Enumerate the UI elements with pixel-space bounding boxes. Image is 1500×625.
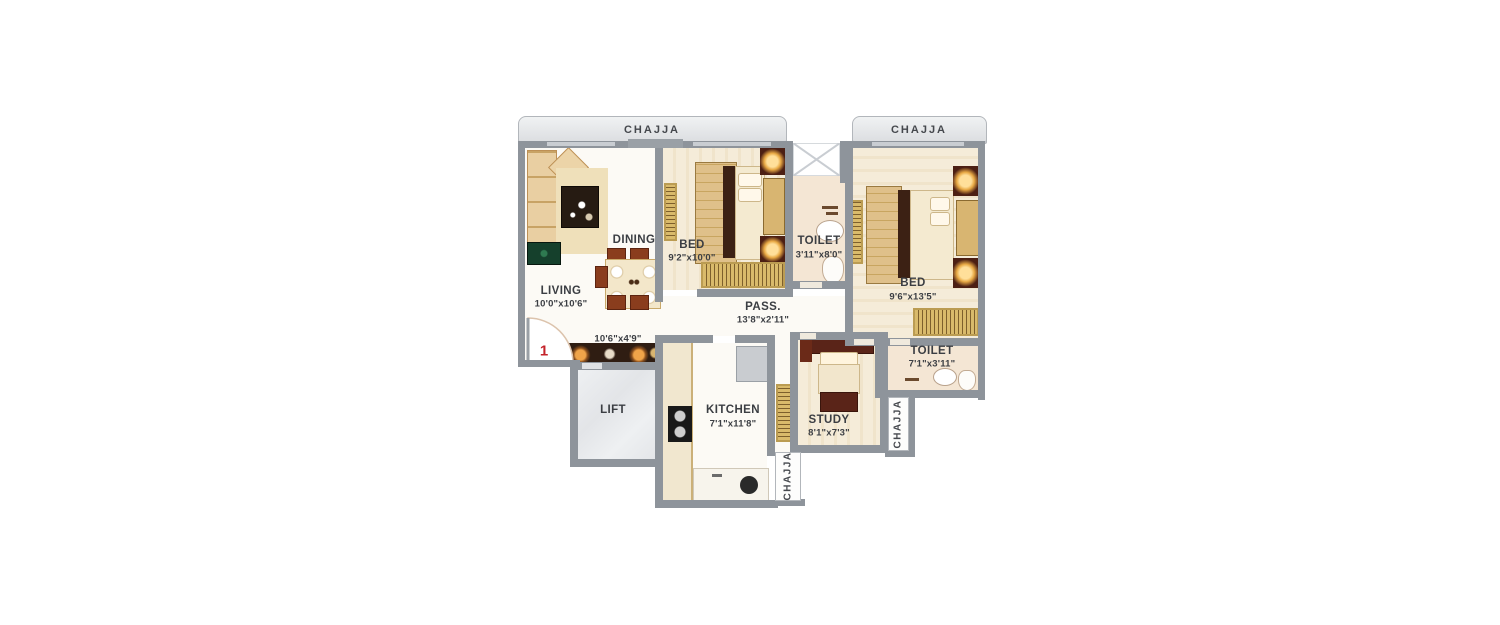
bed1-dresser (664, 183, 677, 241)
wall (570, 459, 663, 467)
chajja-label-bottom: CHAJJA (783, 451, 794, 500)
bed2-side-table (956, 200, 980, 256)
washbasin (933, 368, 957, 386)
pass-label: PASS. (745, 301, 781, 313)
duct-shaft-icon (793, 143, 840, 176)
dining-chair (630, 295, 649, 310)
wall (697, 289, 793, 297)
kitchen-dims: 7'1"x11'8" (710, 419, 757, 430)
study-chair (800, 340, 812, 362)
bed2-runner (898, 190, 910, 278)
bed1-label: BED (679, 239, 704, 251)
fridge (736, 346, 770, 382)
chajja-label-top-right: CHAJJA (891, 124, 947, 136)
bed1-side-table (763, 178, 785, 235)
bed2-dims: 9'6"x13'5" (889, 292, 936, 303)
bed2-pillow (930, 197, 950, 211)
pass-dims: 13'8"x2'11" (737, 315, 789, 326)
chajja-label-top-left: CHAJJA (624, 124, 680, 136)
entrance-marker: 1 (540, 343, 548, 360)
wall (790, 445, 888, 453)
bed2-wardrobe (913, 308, 979, 336)
bed1-nightstand-lamp (760, 236, 785, 263)
wall (845, 141, 853, 346)
study-bed-foot (820, 392, 858, 412)
window-sill (628, 139, 683, 148)
living-dims: 10'0"x10'6" (535, 299, 588, 310)
faucet (712, 474, 722, 477)
toilet-shelf (822, 206, 838, 209)
bed2-pillow (930, 212, 950, 226)
door-opening (890, 339, 910, 345)
study-bed-mattress (818, 364, 860, 394)
wall (655, 500, 778, 508)
toilet1-dims: 3'11"x8'0" (796, 250, 843, 261)
wall (767, 335, 775, 456)
coffee-table (561, 186, 599, 228)
dining-label: DINING (613, 234, 656, 246)
wall (655, 335, 663, 508)
toilet2-label: TOILET (910, 345, 953, 357)
bed1-wardrobe (701, 262, 785, 288)
wall (790, 332, 798, 453)
wall (875, 338, 883, 398)
bed2-nightstand-lamp (953, 258, 978, 288)
door-opening (800, 282, 822, 288)
study-dims: 8'1"x7'3" (808, 428, 850, 439)
wall (785, 141, 793, 290)
study-label: STUDY (809, 414, 850, 426)
wall (518, 141, 525, 367)
bed1-runner (723, 166, 735, 258)
tv-unit (527, 242, 561, 265)
floor-plan: CHAJJA CHAJJA (0, 0, 1500, 625)
wall (655, 335, 713, 343)
chajja-strip-top-right: CHAJJA (852, 116, 987, 144)
foyer-dims: 10'6"x4'9" (594, 334, 641, 345)
toilet1-label: TOILET (797, 235, 840, 247)
wall (570, 362, 578, 467)
chajja-strip-bottom: CHAJJA (775, 452, 801, 501)
foyer-cabinet (566, 343, 663, 363)
bed2-frame (866, 186, 902, 284)
sink (740, 476, 758, 494)
wall (655, 141, 663, 302)
window (872, 142, 964, 146)
window (547, 142, 615, 146)
window (693, 142, 771, 146)
lift-label: LIFT (600, 404, 626, 416)
bed2-nightstand-lamp (953, 166, 978, 196)
bed2-label: BED (900, 277, 925, 289)
toilet-shelf (826, 212, 838, 215)
chajja-strip-right: CHAJJA (888, 397, 909, 451)
entrance-door-arc (524, 316, 578, 366)
stove (668, 406, 692, 442)
bed1-pillow (738, 188, 762, 202)
chajja-label-right: CHAJJA (893, 399, 904, 448)
kitchen-label: KITCHEN (706, 404, 760, 416)
bed1-dims: 9'2"x10'0" (668, 253, 715, 264)
living-label: LIVING (541, 285, 582, 297)
lift-door-opening (582, 363, 602, 369)
wall (978, 141, 985, 400)
dining-chair (595, 266, 608, 288)
bed1-pillow (738, 173, 762, 187)
wall (885, 450, 915, 457)
bed1-nightstand-lamp (760, 148, 785, 175)
toilet-wc (958, 370, 976, 391)
toilet-shelf (905, 378, 919, 381)
toilet2-dims: 7'1"x3'11" (909, 359, 956, 370)
door-opening (854, 339, 874, 345)
door-opening (800, 333, 816, 339)
dining-chair (607, 295, 626, 310)
